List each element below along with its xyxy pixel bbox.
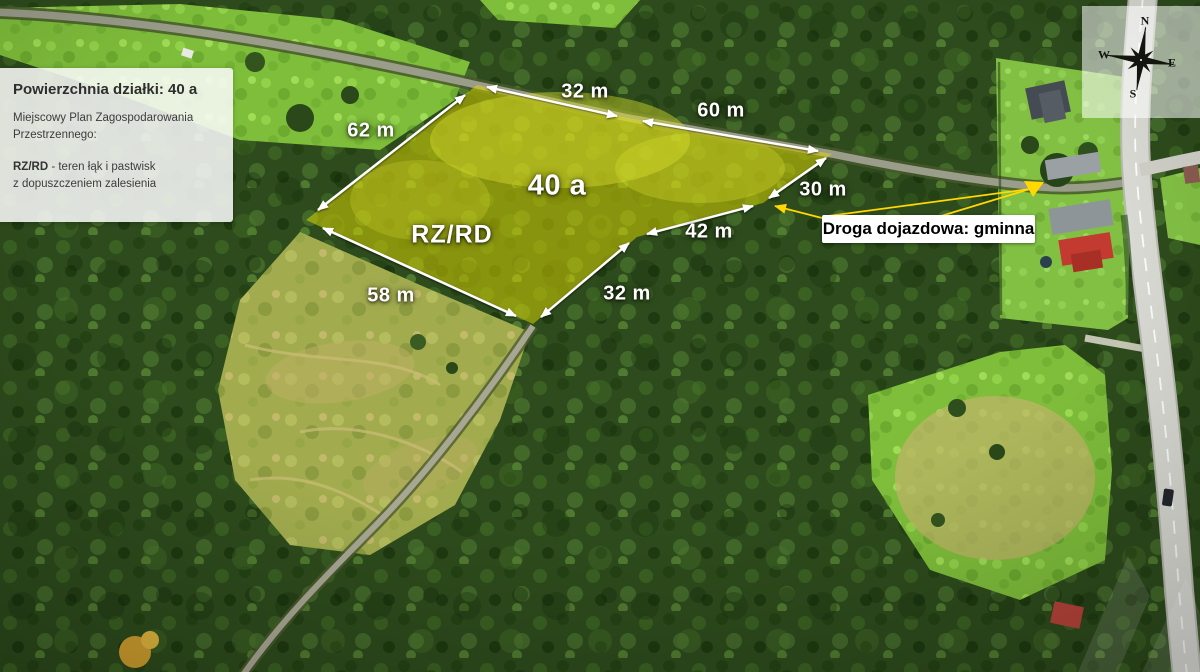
- zone-desc-line2: z dopuszczeniem zalesienia: [13, 178, 156, 190]
- zoning-designation: RZ/RD - teren łąk i pastwisk z dopuszcze…: [13, 159, 219, 194]
- access-road-box: Droga dojazdowa: gminna: [822, 215, 1035, 243]
- parcel-area-title: Powierzchnia działki: 40 a: [13, 81, 219, 98]
- compass-panel: NESW: [1082, 6, 1200, 118]
- aerial-photo-listing: 32 m60 m30 m42 m32 m58 m62 m40 aRZ/RD Po…: [0, 0, 1200, 672]
- compass-rose-icon: [1082, 6, 1200, 118]
- zone-code-text: RZ/RD: [13, 161, 48, 173]
- info-panel: Powierzchnia działki: 40 a Miejscowy Pla…: [0, 68, 233, 222]
- zone-desc-line1: - teren łąk i pastwisk: [48, 161, 155, 173]
- zoning-plan-label: Miejscowy Plan Zagospodarowania Przestrz…: [13, 110, 219, 145]
